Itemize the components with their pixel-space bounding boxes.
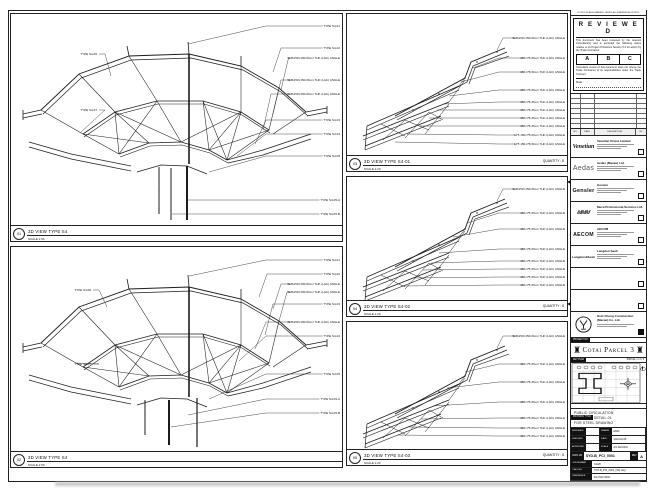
callout-label: 150×75×8mm THK (L&C) ANGLE: [520, 416, 565, 420]
consultant-name: Langdon Seah: [597, 249, 640, 253]
drawing-number-row: DWG NO SYD-B_PCI_0001 REV A: [571, 452, 646, 461]
footer-label: REFERENCE: [571, 474, 592, 480]
address-line: [597, 214, 621, 215]
address-line: [597, 144, 634, 145]
consultant-row: [571, 290, 646, 312]
callout-label: L75 150×75×8mm THK (L&C) ANGLE: [514, 142, 565, 146]
address-line: [597, 188, 634, 189]
address-line: [597, 190, 627, 191]
address-line: [597, 210, 634, 211]
consultant-checkbox[interactable]: [638, 303, 644, 309]
consultant-logo: AECOM: [571, 224, 596, 245]
address-line: [597, 232, 634, 233]
callout-label: SHS150×150×8mm THK (L&C) ANGLE: [512, 187, 565, 191]
consultant-checkbox[interactable]: [638, 171, 644, 177]
view-title: 3D VIEW TYPE S4-01: [363, 156, 543, 165]
footer-label: CAD FILE: [571, 468, 592, 474]
panel-3d-view-s4-03: SHS150×150×8mm THK (L&C) ANGLE150×75×8mm…: [346, 321, 568, 466]
consultant-row: [571, 268, 646, 290]
callout-label: SHS150×150×8mm THK (L&C) ANGLE: [287, 56, 340, 60]
dwg-no-label: DWG NO: [571, 452, 584, 461]
detail-bubble: 04: [349, 303, 361, 315]
signoff-value: 14/AUG/15: [612, 436, 646, 443]
address-line: [597, 166, 634, 167]
signoff-label: APPROVED: [571, 444, 586, 451]
callout-label: 150×75×8mm THK (L&C) ANGLE: [520, 211, 565, 215]
callout-label: TYPE S4-02: [323, 272, 340, 276]
callout-label: TYPE S4-07: [74, 362, 91, 366]
consultant-logo: [571, 268, 596, 289]
footer-value: DG P&C 0000: [592, 476, 610, 479]
address-line: [597, 170, 621, 171]
panel-3d-view-s4-02: SHS150×150×8mm THK (L&C) ANGLE150×75×8mm…: [346, 176, 568, 317]
consultant-logo: Langdon&Seah: [571, 246, 596, 267]
panel-3d-view-s4-top: TYPE S4-01TYPE S4-02SHS150×150×8mm THK (…: [10, 13, 343, 242]
callout-label: SHS150×150×8mm THK (L&C) ANGLE: [287, 290, 340, 294]
callout-label: TYPE S4-03: [323, 302, 340, 306]
callout-label: 150×75×8mm THK (L&C) ANGLE: [520, 100, 565, 104]
project-name-band: ♜ Cotai Parcel 3 ♜: [571, 343, 646, 358]
consultant-row: Venetian Venetian Orient Limited: [571, 136, 646, 158]
callout-label: 150×75×8mm THK (L&C) ANGLE: [520, 275, 565, 279]
detail-number: 04: [353, 307, 357, 311]
callout-label: 150×75×8mm THK (L&C) ANGLE: [520, 426, 565, 430]
callout-label: 150×75×8mm THK (L&C) ANGLE: [520, 124, 565, 128]
consultant-logo: MMM: [571, 202, 596, 223]
view-scale: SCALE 1:50: [27, 462, 342, 467]
callout-label: 150×75×8mm THK (L&C) ANGLE: [520, 116, 565, 120]
revision-table-header: NO.DATEDESCRIPTIONBY: [571, 128, 646, 135]
callout-label: SHS150×150×8mm THK (L&C) ANGLE: [512, 334, 565, 338]
north-arrow-icon: [641, 366, 646, 371]
callout-label: SHS150×150×8mm THK (L&C) ANGLE: [287, 282, 340, 286]
address-line: [597, 168, 627, 169]
address-line: [597, 212, 627, 213]
consultant-logo: Aedas: [571, 158, 596, 179]
callout-label: L75 150×75×8mm THK (L&C) ANGLE: [514, 133, 565, 137]
footer-label: JOB NUMBER: [571, 461, 592, 467]
signoff-row: CHECKED - DATE 14/AUG/15: [571, 436, 646, 444]
page-edge-shadow: [55, 482, 640, 486]
consultant-checkbox[interactable]: [638, 281, 644, 287]
key-plan-map: [571, 363, 646, 404]
address-line: [597, 192, 621, 193]
callout-label: 150×75×8mm THK (L&C) ANGLE: [520, 380, 565, 384]
footer-value: 31128: [592, 463, 601, 466]
callout-label: SHS150×150×8mm THK (L&C) ANGLE: [287, 320, 340, 324]
signoff-value: -: [586, 436, 600, 443]
consultant-checkbox[interactable]: [638, 215, 644, 221]
revision-table: NO.DATEDESCRIPTIONBY: [571, 94, 646, 136]
callout-label: TYPE S4-06: [74, 288, 91, 292]
callout-label: 150×75×8mm THK (L&C) ANGLE: [520, 70, 565, 74]
address-line: [597, 256, 627, 257]
callout-label: 150×75×8mm THK (L&C) ANGLE: [520, 434, 565, 438]
callout-label: 150×75×8mm THK (L&C) ANGLE: [520, 362, 565, 366]
consultant-logo: Venetian: [571, 136, 596, 157]
dome-structure-drawing-1: TYPE S4-01TYPE S4-02SHS150×150×8mm THK (…: [11, 14, 342, 225]
dome-structure-drawing-2: TYPE S4-01TYPE S4-02SHS150×150×8mm THK (…: [11, 247, 342, 451]
callout-label: SHS150×150×8mm THK (L&C) ANGLE: [287, 78, 340, 82]
panel-3d-view-s4-bottom: TYPE S4-01TYPE S4-02SHS150×150×8mm THK (…: [10, 246, 343, 468]
consultant-checkbox[interactable]: [638, 237, 644, 243]
rev-label: REV: [630, 452, 638, 461]
view-scale: SCALE 1:20: [363, 311, 567, 316]
revision-column-header: DESCRIPTION: [595, 129, 636, 135]
reviewed-title: R E V I E W E D: [576, 20, 641, 38]
footer-value: SYD-B_PCI_0001_(S4).dwg: [592, 469, 626, 472]
status-boxes: ABC: [576, 54, 641, 65]
signoff-value: -: [586, 428, 600, 435]
reviewed-paragraph-2: Consultant review of this document does …: [576, 66, 641, 76]
callout-label: TYPE S4-02: [323, 46, 340, 50]
address-line: [597, 258, 621, 259]
status-box[interactable]: A: [577, 55, 598, 64]
contractor-row: Hsin Chong Construction (Macau) Co. Ltd.: [571, 312, 646, 338]
consultant-list: Venetian Venetian Orient Limited Aedas A…: [571, 136, 646, 312]
key-plan-drawing: [571, 363, 646, 403]
callout-label: TYPE S4-05: [323, 372, 340, 376]
drawing-title-line: FOR STEEL DRAWING: [574, 421, 646, 426]
signoff-value: AS SHOWN: [612, 444, 646, 451]
panel-title-strip: 03 3D VIEW TYPE S4-01 QUANTITY : 8 SCALE…: [347, 155, 567, 171]
title-block: DO NOT SCALE DRAWING. VERIFY ALL DIMENSI…: [570, 10, 646, 481]
detail-bubble: 05: [349, 452, 361, 464]
address-line: [597, 236, 621, 237]
signoff-label: DATE: [600, 436, 612, 443]
reviewed-stamp: R E V I E W E D This document has been r…: [571, 16, 646, 94]
consultant-row: MMM Meca Professional Services Ltd.: [571, 202, 646, 224]
signoff-label: DRAWN: [600, 428, 612, 435]
callout-label: TYPE S4-05-B: [320, 411, 340, 415]
signoff-row: DESIGNED - DRAWN EMO: [571, 428, 646, 436]
address-line: [597, 326, 627, 327]
revision-column-header: BY: [636, 129, 646, 135]
consultant-row: Aedas Aedas (Macau) Ltd.: [571, 158, 646, 180]
truss-drawing-1: SHS150×150×8mm THK (L&C) ANGLE150×75×8mm…: [347, 14, 567, 155]
tower-emblem-icon: ♜: [573, 346, 581, 355]
quantity-note: QUANTITY : 8: [543, 156, 567, 165]
callout-label: TYPE S4-06: [80, 52, 97, 56]
detail-number: 01: [17, 232, 21, 236]
view-scale: SCALE 1:20: [363, 460, 567, 465]
project-number-label: PROJECT NO.: [571, 338, 590, 342]
detail-bubble: 03: [349, 158, 361, 170]
consultant-row: Langdon&Seah Langdon Seah: [571, 246, 646, 268]
footer-rows: JOB NUMBER 31128 CAD FILE SYD-B_PCI_0001…: [571, 461, 646, 481]
callout-label: TYPE S4-05: [323, 154, 340, 158]
consultant-row: AECOM AECOM: [571, 224, 646, 246]
revision-column-header: DATE: [581, 129, 595, 135]
consultant-name: Gensler: [597, 183, 640, 187]
binding-tab-icon: [567, 180, 571, 184]
callout-label: TYPE S4-05-B: [320, 212, 340, 216]
view-scale: SCALE 1:20: [363, 166, 567, 171]
callout-label: 150×75×8mm THK (L&C) ANGLE: [520, 267, 565, 271]
consultant-row: Gensler Gensler: [571, 180, 646, 202]
callout-label: TYPE S4-04: [323, 334, 340, 338]
address-line: [597, 324, 634, 325]
view-title: 3D VIEW TYPE S4-02: [363, 301, 543, 310]
status-box[interactable]: B: [598, 55, 619, 64]
panel-title-strip: 02 3D VIEW TYPE S4 SCALE 1:50: [11, 451, 342, 467]
footer-row: JOB NUMBER 31128: [571, 461, 646, 468]
quantity-note: QUANTITY : 8: [543, 301, 567, 310]
detail-number: 03: [353, 162, 357, 166]
drawing-sheet: TYPE S4-01TYPE S4-02SHS150×150×8mm THK (…: [0, 0, 650, 488]
panel-3d-view-s4-01: SHS150×150×8mm THK (L&C) ANGLE150×75×8mm…: [346, 13, 568, 172]
contractor-emblem-icon: [571, 312, 596, 337]
callout-label: 150×75×8mm THK (L&C) ANGLE: [520, 400, 565, 404]
view-title: 3D VIEW TYPE S4: [27, 452, 342, 461]
callout-label: 150×75×8mm THK (L&C) ANGLE: [520, 56, 565, 60]
callout-label: TYPE S4-01: [323, 258, 340, 262]
reviewed-date-field[interactable]: Date :: [576, 78, 641, 89]
consultant-name: Aedas (Macau) Ltd.: [597, 161, 640, 165]
key-plan-parcel-label: PARCEL 1 / 2 / 3: [627, 358, 646, 362]
callout-label: 150×75×8mm THK (L&C) ANGLE: [520, 88, 565, 92]
view-title: 3D VIEW TYPE S4-03: [363, 450, 543, 459]
consultant-name: Meca Professional Services Ltd.: [597, 205, 640, 209]
project-name: Cotai Parcel 3: [583, 346, 635, 354]
panel-title-strip: 01 3D VIEW TYPE S4 SCALE 1:50: [11, 225, 342, 241]
callout-label: TYPE S4-07: [80, 108, 97, 112]
consultant-checkbox[interactable]: [638, 259, 644, 265]
contractor-name-line2: (Macau) Co. Ltd.: [597, 319, 640, 323]
detail-bubble: 01: [13, 228, 25, 240]
signoff-table: DESIGNED - DRAWN EMO CHECKED - DATE 14/A…: [571, 428, 646, 452]
detail-number: 05: [353, 456, 357, 460]
callout-label: 150×75×8mm THK (L&C) ANGLE: [520, 247, 565, 251]
address-line: [597, 148, 621, 149]
consultant-name: Venetian Orient Limited: [597, 139, 640, 143]
callout-label: SHS150×150×8mm THK (L&C) ANGLE: [512, 36, 565, 40]
signoff-label: CHECKED: [571, 436, 586, 443]
drawing-title: PUBLIC CIRCULATIONFOUNTAIN DETAIL 01FOR …: [571, 409, 646, 428]
footer-row: CAD FILE SYD-B_PCI_0001_(S4).dwg: [571, 468, 646, 475]
quantity-note: QUANTITY : 8: [543, 450, 567, 459]
detail-bubble: 02: [13, 454, 25, 466]
view-title: 3D VIEW TYPE S4: [27, 226, 342, 235]
footer-row: REFERENCE DG P&C 0000: [571, 474, 646, 481]
consultant-logo: Gensler: [571, 180, 596, 201]
consultant-checkbox[interactable]: [638, 193, 644, 199]
callout-label: 150×75×8mm THK (L&C) ANGLE: [520, 283, 565, 287]
callout-label: 150×75×8mm THK (L&C) ANGLE: [520, 259, 565, 263]
signoff-value: -: [586, 444, 600, 451]
view-scale: SCALE 1:50: [27, 236, 342, 241]
callout-label: TYPE S4-05-A: [320, 397, 340, 401]
panel-title-strip: 04 3D VIEW TYPE S4-02 QUANTITY : 8 SCALE…: [347, 300, 567, 316]
address-line: [597, 234, 627, 235]
callout-label: TYPE S4-03: [323, 118, 340, 122]
reviewed-paragraph-1: This document has been reviewed by the r…: [576, 39, 641, 52]
tower-emblem-icon: ♜: [636, 346, 644, 355]
signoff-row: APPROVED - SCALE AS SHOWN: [571, 444, 646, 451]
address-line: [597, 146, 627, 147]
revision-column-header: NO.: [571, 129, 581, 135]
rev-value: A: [638, 454, 646, 459]
truss-drawing-3: SHS150×150×8mm THK (L&C) ANGLE150×75×8mm…: [347, 322, 567, 449]
status-box[interactable]: C: [620, 55, 640, 64]
callout-label: 150×75×8mm THK (L&C) ANGLE: [520, 108, 565, 112]
key-plan-label: KEY PLAN: [571, 358, 586, 362]
callout-label: TYPE S4-04: [323, 132, 340, 136]
callout-label: TYPE S4-05-A: [320, 198, 340, 202]
contractor-checkbox[interactable]: [638, 329, 644, 335]
panel-title-strip: 05 3D VIEW TYPE S4-03 QUANTITY : 8 SCALE…: [347, 449, 567, 465]
callout-label: SHS150×150×8mm THK (L&C) ANGLE: [287, 92, 340, 96]
signoff-label: DESIGNED: [571, 428, 586, 435]
truss-drawing-2: SHS150×150×8mm THK (L&C) ANGLE150×75×8mm…: [347, 177, 567, 300]
binding-tab-icon: [567, 302, 571, 306]
callout-label: 150×75×8mm THK (L&C) ANGLE: [520, 227, 565, 231]
signoff-label: SCALE: [600, 444, 612, 451]
signoff-value: EMO: [612, 428, 646, 435]
detail-number: 02: [17, 458, 21, 462]
callout-label: TYPE S4-01: [323, 24, 340, 28]
consultant-name: AECOM: [597, 227, 640, 231]
address-line: [597, 254, 634, 255]
consultant-logo: [571, 290, 596, 311]
dwg-no-value: SYD-B_PCI_0001: [584, 454, 631, 458]
consultant-checkbox[interactable]: [638, 149, 644, 155]
